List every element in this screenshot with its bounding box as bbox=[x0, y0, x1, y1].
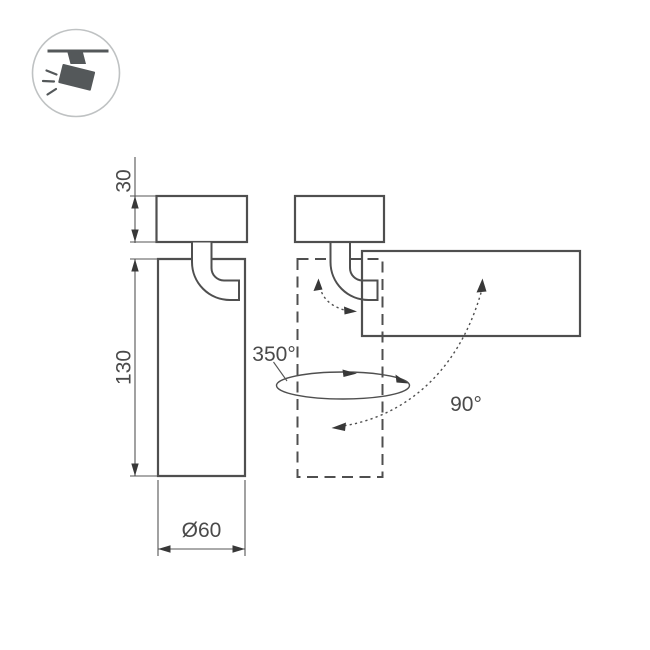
pan-angle-label: 350° bbox=[252, 343, 295, 366]
rotation-view: 350° 90° bbox=[252, 196, 580, 477]
swivel-elbow-arm bbox=[192, 243, 239, 301]
mount-base-outline bbox=[295, 196, 384, 242]
dimension-base-height: 30 bbox=[113, 157, 157, 243]
pan-rotation-ellipse bbox=[277, 372, 410, 399]
arrowhead-up-icon bbox=[477, 279, 487, 293]
base-height-label: 30 bbox=[113, 169, 136, 192]
dimension-lines bbox=[158, 480, 245, 556]
luminaire-dimension-drawing: 30 130 Ø60 bbox=[0, 0, 650, 650]
body-height-label: 130 bbox=[113, 350, 136, 385]
tilt-rotation-annotation: 90° bbox=[332, 279, 487, 432]
tilt-angle-label: 90° bbox=[450, 393, 482, 416]
icon-badge bbox=[33, 30, 120, 117]
arrowhead-up-icon bbox=[131, 259, 138, 272]
pan-rotation-annotation: 350° bbox=[252, 343, 409, 399]
front-view: 30 130 Ø60 bbox=[113, 157, 248, 556]
dimension-diameter: Ø60 bbox=[158, 480, 245, 556]
arrowhead-left-icon bbox=[158, 545, 171, 552]
technical-drawing-canvas: 30 130 Ø60 bbox=[0, 0, 650, 650]
arrowhead-right-icon bbox=[343, 370, 358, 378]
arrowhead-down-icon bbox=[131, 230, 138, 243]
arrowhead-right-icon bbox=[233, 545, 246, 552]
spot-stem bbox=[68, 53, 87, 65]
arrowhead-right-icon bbox=[344, 307, 357, 315]
dimension-body-height: 130 bbox=[113, 259, 159, 476]
arrowhead-left-icon bbox=[332, 423, 347, 432]
arrowhead-down-icon bbox=[131, 464, 138, 477]
arrowhead-up-icon bbox=[131, 196, 138, 209]
arrowhead-right-icon bbox=[396, 375, 409, 384]
mount-base-outline bbox=[157, 196, 248, 242]
diameter-label: Ø60 bbox=[182, 519, 222, 542]
body-tilted-horizontal-outline bbox=[362, 251, 580, 336]
arrowhead-up-icon bbox=[314, 279, 323, 292]
